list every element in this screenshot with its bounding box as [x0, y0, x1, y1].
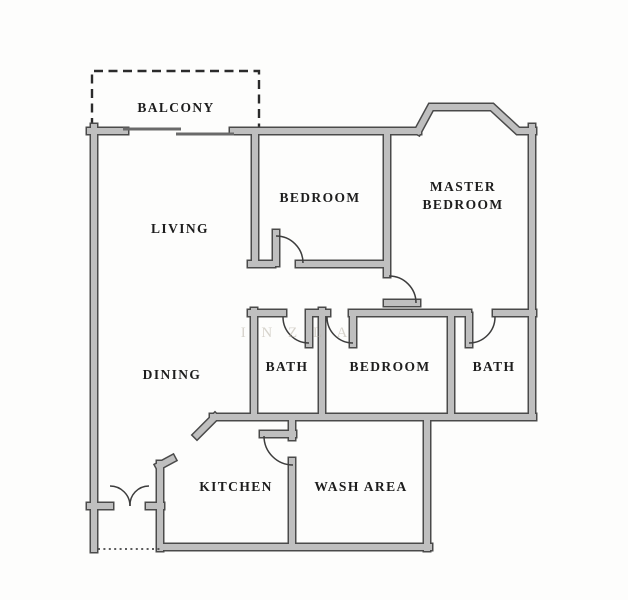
room-label-wash-area: WASH AREA [314, 479, 407, 494]
room-label-master-line1: MASTER [430, 179, 496, 194]
room-label-bath-left: BATH [266, 359, 309, 374]
room-label-kitchen: KITCHEN [199, 479, 273, 494]
watermark-text: I N Z L A [241, 325, 354, 341]
room-label-living: LIVING [151, 221, 209, 236]
room-label-bath-right: BATH [473, 359, 516, 374]
room-label-master-line2: BEDROOM [422, 197, 503, 212]
balcony-dashed-outline [92, 71, 259, 127]
room-label-bedroom-top: BEDROOM [279, 190, 360, 205]
floor-plan: I N Z L A BALCONY LIVING BEDROOM MASTER … [0, 0, 628, 600]
room-label-bedroom-bottom: BEDROOM [349, 359, 430, 374]
room-label-dining: DINING [143, 367, 202, 382]
room-label-balcony: BALCONY [137, 100, 214, 115]
